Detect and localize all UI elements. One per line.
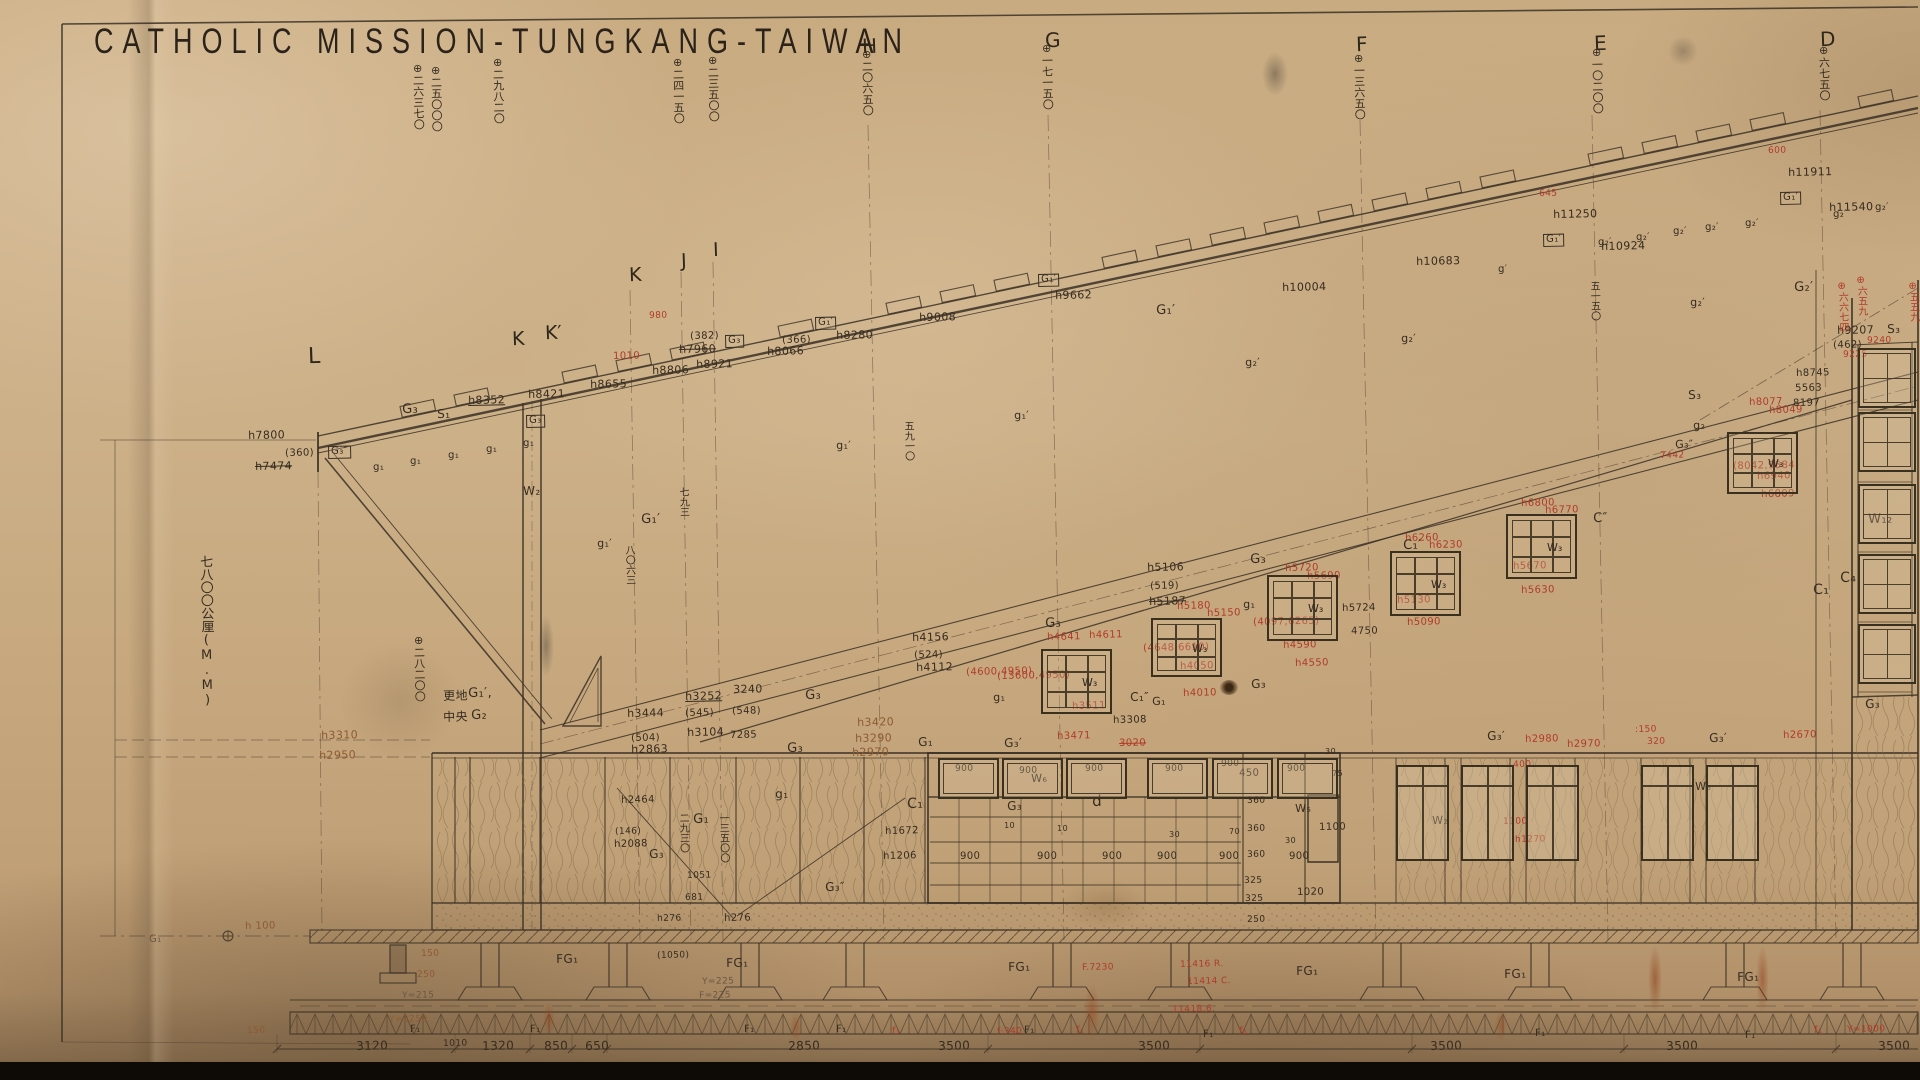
mullion (1422, 767, 1424, 859)
annotation-text: h8655 (590, 378, 627, 390)
dimension-label: 1320 (482, 1039, 514, 1052)
muntin (1733, 472, 1792, 474)
transom-bar (1708, 785, 1757, 787)
transom-window (1277, 758, 1338, 799)
annotation-text: h 100 (245, 921, 276, 932)
annotation-text: ⊕一三六五〇 (1353, 52, 1365, 120)
annotation-text: h11250 (1553, 208, 1598, 220)
mullion (1667, 767, 1669, 859)
annotation-text: G₃ (649, 848, 664, 860)
annotation-text: 250 (1247, 916, 1266, 925)
annotation-text: h2464 (621, 795, 655, 806)
annotation-text: 325 (1245, 895, 1264, 904)
annotation-text: G₃′ (1709, 732, 1727, 744)
annotation-text: f₁ (1814, 1026, 1823, 1036)
annotation-text: h1672 (885, 826, 919, 837)
dimension-label: 3500 (1138, 1039, 1170, 1052)
annotation-text: (1050) (657, 951, 690, 961)
annotation-text: C₁″ (1130, 691, 1149, 703)
annotation-text: h10004 (1282, 281, 1327, 293)
annotation-text: G₃ (1007, 800, 1022, 812)
annotation-text: 150 (421, 950, 440, 959)
annotation-text: 10 (1004, 822, 1015, 830)
annotation-text: ⊕二九八二〇 (492, 56, 504, 124)
annotation-text: G₃ (725, 335, 744, 348)
transom-bar (1643, 785, 1692, 787)
annotation-text: F=225 (699, 991, 731, 1001)
annotation-text: h7960 (679, 343, 716, 355)
grid-letter-K: K (512, 328, 525, 350)
annotation-text: C₄ (1840, 571, 1856, 585)
annotation-text: 11414 C. (1187, 977, 1231, 987)
window-label: W₃ (1192, 642, 1207, 655)
annotation-text: 900 (1219, 852, 1240, 862)
dimension-label: 3500 (1666, 1039, 1698, 1052)
annotation-text: G₁′ (641, 513, 661, 526)
annotation-text: 900 (960, 852, 981, 862)
annotation-text: G₃′ (1004, 737, 1022, 749)
annotation-text: ⊕二八二〇〇 (413, 634, 425, 702)
muntin (1733, 453, 1792, 455)
annotation-text: h11911 (1788, 166, 1833, 178)
annotation-text: C″ (1593, 512, 1608, 525)
window-inner-frame (1152, 763, 1203, 794)
annotation-text: G₁′ (815, 317, 837, 330)
annotation-text: (548) (732, 706, 761, 717)
annotation-text: h3420 (857, 716, 894, 728)
annotation-text: g₁′ (597, 538, 612, 549)
annotation-text: 8197 (1793, 398, 1820, 409)
annotation-text: h4156 (912, 631, 949, 643)
annotation-text: h2670 (1783, 730, 1817, 741)
muntin (1863, 654, 1911, 655)
transom-bar (1398, 785, 1447, 787)
annotation-text: h2980 (1525, 734, 1559, 745)
annotation-text: 30 (1285, 837, 1296, 845)
annotation-text: 3020 (1119, 738, 1146, 749)
annotation-text: F.7230 (1082, 963, 1114, 973)
annotation-text: 150 (247, 1027, 266, 1036)
annotation-text: G₂′ (1794, 281, 1814, 294)
annotation-text: G₃ (1251, 678, 1266, 690)
annotation-text: G₃ (787, 742, 803, 755)
annotation-text: 更地 (443, 689, 468, 702)
annotation-text: G₃″ (328, 446, 351, 459)
annotation-text: F₁ (1024, 1026, 1035, 1036)
annotation-text: F₁ (836, 1025, 847, 1035)
annotation-text: 681 (685, 894, 704, 903)
annotation-text: (4600,4950) (966, 667, 1032, 678)
annotation-text: F₁ (410, 1025, 421, 1035)
annotation-text: F₁ (744, 1025, 755, 1035)
annotation-text: 7442 (1660, 451, 1685, 461)
annotation-text: h8066 (767, 345, 804, 357)
annotation-text: h5090 (1407, 617, 1441, 628)
annotation-text: S₃ (1688, 389, 1701, 401)
annotation-text: ⊕二六三七〇 (412, 62, 424, 130)
muntin (1414, 557, 1416, 610)
annotation-text: h3252 (685, 690, 722, 702)
annotation-text: h4641 (1047, 632, 1081, 643)
grid-letter-K: K (629, 264, 642, 286)
annotation-text: g₂′ (1690, 297, 1705, 308)
muntin (1047, 691, 1106, 693)
annotation-text: 11416 R. (1180, 960, 1224, 970)
dimension-label: 3120 (356, 1039, 388, 1052)
annotation-text: h8806 (652, 364, 689, 376)
annotation-text: g₁ (775, 788, 788, 800)
clerestory-window: W₃ (1151, 618, 1222, 677)
annotation-text: 1020 (1297, 887, 1324, 898)
grid-letter-Kp: K′ (545, 322, 563, 345)
annotation-text: G₁ (918, 736, 933, 748)
tower-window (1858, 554, 1916, 614)
annotation-text: Y=215 (402, 991, 434, 1001)
annotation-text: h3104 (687, 726, 724, 738)
annotation-text: h10683 (1416, 255, 1461, 267)
window-inner-frame (1071, 763, 1122, 794)
annotation-text: 9240 (1867, 336, 1892, 346)
annotation-text: 五一五〇 (1588, 281, 1599, 321)
annotation-text: h2950 (319, 749, 356, 761)
annotation-text: Y=225 (702, 977, 734, 987)
muntin (1047, 671, 1106, 673)
annotation-text: h1206 (883, 851, 917, 862)
annotation-text: g′ (1498, 265, 1508, 275)
annotation-text: h276 (657, 914, 682, 924)
dimension-label: 3500 (1430, 1039, 1462, 1052)
transom-bar (1463, 785, 1512, 787)
annotation-text: (146) (615, 827, 641, 837)
annotation-text: S₁ (437, 408, 450, 420)
annotation-text: G₁′ (1156, 304, 1176, 317)
annotation-text: h4010 (1183, 688, 1217, 699)
annotation-text: (545) (685, 708, 714, 719)
annotation-text: 30 (1169, 831, 1180, 839)
annotation-text: h6230 (1429, 540, 1463, 551)
annotation-text: g₂′ (1833, 210, 1847, 220)
blueprint-canvas: CATHOLIC MISSION-TUNGKANG-TAIWAN HGFEDLK… (0, 0, 1920, 1080)
annotation-text: G₁′ (1543, 234, 1565, 247)
grid-letter-I: I (713, 239, 719, 261)
annotation-text: 320 (1647, 738, 1666, 747)
annotation-text: 900 (1157, 852, 1178, 862)
annotation-text: F₁ (530, 1025, 541, 1035)
annotation-text: h3290 (855, 732, 892, 744)
transom-window (1066, 758, 1127, 799)
annotation-text: ⊕二五〇〇〇 (430, 64, 442, 132)
annotation-text: ⊕一七一五〇 (1041, 42, 1053, 110)
muntin (1396, 593, 1455, 595)
annotation-text: G₂ (471, 709, 487, 722)
annotation-text: g₁ (486, 445, 497, 455)
transom-window (938, 758, 999, 799)
muntin (1157, 638, 1216, 640)
annotation-text: g₁′ (836, 440, 851, 451)
wall-window (1526, 765, 1579, 861)
annotation-text: h4112 (916, 661, 953, 673)
annotation-text: g₂′ (1636, 233, 1650, 243)
dimension-label: 3500 (1878, 1039, 1910, 1052)
dimension-label: 850 (544, 1039, 568, 1052)
annotation-text: 900 (1102, 852, 1123, 862)
clerestory-window: W₃ (1041, 649, 1112, 714)
annotation-text: FG₁ (556, 953, 578, 965)
mullion (1552, 767, 1554, 859)
annotation-text: F₁ (1203, 1030, 1214, 1040)
annotation-text: W₂ (523, 485, 541, 497)
annotation-text: g₁ (523, 439, 534, 449)
annotation-text: g₂′ (1875, 203, 1889, 213)
annotation-text: G₃ (1045, 617, 1061, 630)
annotation-text: h3471 (1057, 731, 1091, 742)
annotation-text: G₁′ (1038, 274, 1060, 287)
transom-bar (1528, 785, 1577, 787)
annotation-text: 645 (1539, 190, 1558, 199)
muntin (1291, 581, 1293, 635)
annotation-text: G₁′ (1780, 192, 1802, 205)
wall-window (1461, 765, 1514, 861)
annotation-text: h5106 (1147, 561, 1184, 573)
annotation-text: f·340 (997, 1027, 1022, 1037)
annotation-text: h5630 (1521, 585, 1555, 596)
annotation-text: (519) (1150, 581, 1179, 592)
annotation-text: h5724 (1342, 603, 1376, 614)
annotation-text: f₁ (1239, 1027, 1248, 1037)
muntin (1863, 378, 1911, 379)
annotation-text: ⊕二〇六五〇 (861, 48, 873, 116)
annotation-text: h2863 (631, 743, 668, 755)
annotation-text: g₂′ (1705, 223, 1719, 233)
annotation-text: h5187 (1149, 595, 1186, 607)
annotation-text: G₁′, (468, 686, 492, 699)
annotation-text: 70 (1229, 828, 1240, 836)
annotation-text: ⊕二四一五〇 (672, 56, 684, 124)
annotation-text: ⊕五五九 (1907, 281, 1918, 322)
annotation-text: ⊕二三五〇〇 (707, 54, 719, 122)
annotation-text: :150 (1635, 726, 1657, 735)
annotation-text: 325 (1244, 877, 1263, 886)
annotation-text: 4750 (1351, 626, 1378, 637)
annotation-text: 600 (1768, 147, 1787, 156)
annotation-text: (360) (285, 448, 314, 459)
clerestory-window: W₃ (1506, 514, 1577, 579)
mullion (1732, 767, 1734, 859)
annotation-text: h8421 (528, 388, 565, 400)
window-label: W₃ (1547, 541, 1562, 554)
muntin (1273, 618, 1332, 620)
annotation-text: h2970 (1567, 739, 1601, 750)
annotation-text: ⊕六六七四 (1836, 281, 1847, 332)
annotation-text: 中央 (443, 710, 468, 723)
annotation-text: 900 (1289, 852, 1310, 862)
wall-window (1706, 765, 1759, 861)
annotation-text: 30 (1325, 748, 1336, 756)
annotation-text: h2088 (614, 839, 648, 850)
annotation-text: h4611 (1089, 630, 1123, 641)
annotation-text: F₁ (1745, 1031, 1756, 1041)
annotation-text: 八〇六三 (623, 545, 634, 585)
tower-window (1858, 348, 1916, 408)
annotation-text: f₁ (892, 1027, 901, 1037)
annotation-text: 1051 (687, 871, 712, 881)
transom-window (1147, 758, 1208, 799)
muntin (1863, 442, 1911, 443)
wall-window (1641, 765, 1694, 861)
muntin (1863, 584, 1911, 585)
muntin (1863, 514, 1911, 515)
annotation-text: 1010 (613, 351, 640, 362)
annotation-text: h8921 (696, 358, 733, 370)
annotation-text: h9662 (1055, 289, 1092, 301)
tower-window (1858, 624, 1916, 684)
annotation-text: C₁ (907, 797, 923, 811)
window-inner-frame (1217, 763, 1268, 794)
annotation-text: 11418.6. (1172, 1005, 1215, 1015)
annotation-text: ⊕一〇二〇〇 (1591, 46, 1603, 114)
tower-window (1858, 412, 1916, 472)
annotation-text: h3444 (627, 707, 664, 719)
annotation-text: h8280 (836, 329, 873, 341)
annotation-text: (524) (914, 650, 943, 661)
annotation-text: g₁ (1243, 599, 1255, 610)
annotation-text: h2970 (852, 746, 889, 758)
muntin (1512, 536, 1571, 538)
annotation-text: 七九三 (677, 487, 688, 517)
annotation-text: 7285 (730, 730, 757, 741)
dimension-label: 1010 (443, 1039, 468, 1049)
muntin (1065, 655, 1067, 708)
muntin (1512, 556, 1571, 558)
muntin (1396, 573, 1455, 575)
window-inner-frame (1007, 763, 1058, 794)
annotation-text: 360 (1247, 825, 1266, 834)
grid-letter-L: L (308, 344, 321, 369)
annotation-text: g₂′ (1745, 219, 1759, 229)
annotation-text: Y=2250 (389, 1015, 428, 1025)
annotation-text: 5563 (1795, 383, 1822, 394)
muntin (1157, 656, 1216, 658)
annotation-text: 一三五〇〇 (717, 813, 728, 863)
annotation-text: h9008 (919, 311, 956, 323)
annotation-text: C₁′ (1403, 539, 1422, 552)
annotation-text: W₅ (1295, 803, 1311, 814)
annotation-text: g₂′ (1673, 227, 1687, 237)
annotation-text: (382) (690, 331, 719, 342)
clerestory-window: W₃ (1390, 551, 1461, 616)
annotation-text: h3310 (321, 729, 358, 741)
annotation-text: G₃′ (1487, 730, 1505, 742)
annotation-text: Y=1000 (1847, 1025, 1886, 1035)
annotation-text: h3308 (1113, 715, 1147, 726)
annotation-text: 五九一〇 (902, 421, 913, 461)
annotation-text: g₁ (993, 692, 1005, 703)
annotation-text: 360 (1247, 851, 1266, 860)
transom-window (1002, 758, 1063, 799)
annotation-text: g₂′ (1245, 357, 1260, 368)
window-label: W₃ (1431, 578, 1446, 591)
annotation-text: ⊕六七五〇 (1818, 44, 1830, 101)
dimension-label: 3500 (938, 1039, 970, 1052)
annotation-text: g₂ (1693, 420, 1705, 431)
annotation-text: G₃″ (1675, 439, 1693, 450)
grid-letter-J: J (681, 250, 687, 272)
annotation-text: h7800 (248, 429, 285, 441)
annotation-text: 七八〇〇公厘(M.M) (198, 555, 214, 708)
annotation-text: G₃″ (825, 881, 845, 893)
transom-window (1212, 758, 1273, 799)
wall-window (1396, 765, 1449, 861)
annotation-text: 980 (649, 312, 668, 321)
annotation-text: G₃ (805, 689, 821, 702)
muntin (1273, 597, 1332, 599)
annotation-text: g₁′ (1014, 410, 1029, 421)
annotation-text: S₃ (1887, 323, 1900, 335)
annotation-text: 900 (1037, 852, 1058, 862)
muntin (1175, 624, 1177, 671)
muntin (1751, 438, 1753, 488)
drawing-linework (0, 0, 1920, 1080)
annotation-text: g₂′ (1598, 238, 1612, 248)
annotation-text: h7474 (255, 460, 292, 472)
annotation-text: h276 (724, 913, 751, 924)
annotation-text: g₁ (410, 457, 421, 467)
annotation-text: G₁ (149, 935, 162, 945)
annotation-text: 10 (1057, 825, 1068, 833)
clerestory-window: W₃ (1267, 575, 1338, 641)
annotation-text: G₁ (1152, 696, 1166, 707)
annotation-text: h4550 (1295, 658, 1329, 669)
annotation-text: h8745 (1796, 368, 1830, 379)
annotation-text: FG₁ (726, 957, 748, 969)
annotation-text: FG₁ (1504, 968, 1526, 980)
annotation-text: g₂′ (1401, 333, 1416, 344)
annotation-text: 二九三〇 (677, 813, 688, 853)
annotation-text: G₁ (693, 813, 709, 826)
annotation-text: h4590 (1283, 640, 1317, 651)
window-label: W₃ (1308, 602, 1323, 615)
annotation-text: G₃ (1865, 698, 1880, 710)
clerestory-window: W₃ (1727, 432, 1798, 494)
window-inner-frame (943, 763, 994, 794)
annotation-text: g₁ (448, 451, 459, 461)
annotation-text: G₃ (1250, 553, 1266, 566)
annotation-text: 3240 (733, 683, 763, 695)
annotation-text: C₁ (1813, 583, 1829, 597)
dimension-label: 2850 (788, 1039, 820, 1052)
dimension-label: 650 (585, 1039, 609, 1052)
annotation-text: FG₁ (1008, 961, 1030, 973)
window-inner-frame (1282, 763, 1333, 794)
window-label: W₃ (1768, 457, 1783, 470)
annotation-text: G₃ (526, 415, 545, 428)
annotation-text: h8352 (468, 394, 505, 406)
annotation-text: F₁ (1535, 1029, 1546, 1039)
annotation-text: FG₁ (1737, 971, 1759, 983)
mullion (1487, 767, 1489, 859)
tower-window (1858, 484, 1916, 544)
annotation-text: ⊕六五九 (1855, 275, 1866, 316)
muntin (1530, 520, 1532, 573)
annotation-text: 1100 (1319, 822, 1346, 833)
annotation-text: FG₁ (1296, 965, 1318, 977)
annotation-text: G₃ (402, 403, 418, 416)
window-label: W₃ (1082, 676, 1097, 689)
annotation-text: f₁ (1076, 1026, 1085, 1036)
annotation-text: 250 (417, 971, 436, 980)
annotation-text: g₁ (373, 463, 384, 473)
